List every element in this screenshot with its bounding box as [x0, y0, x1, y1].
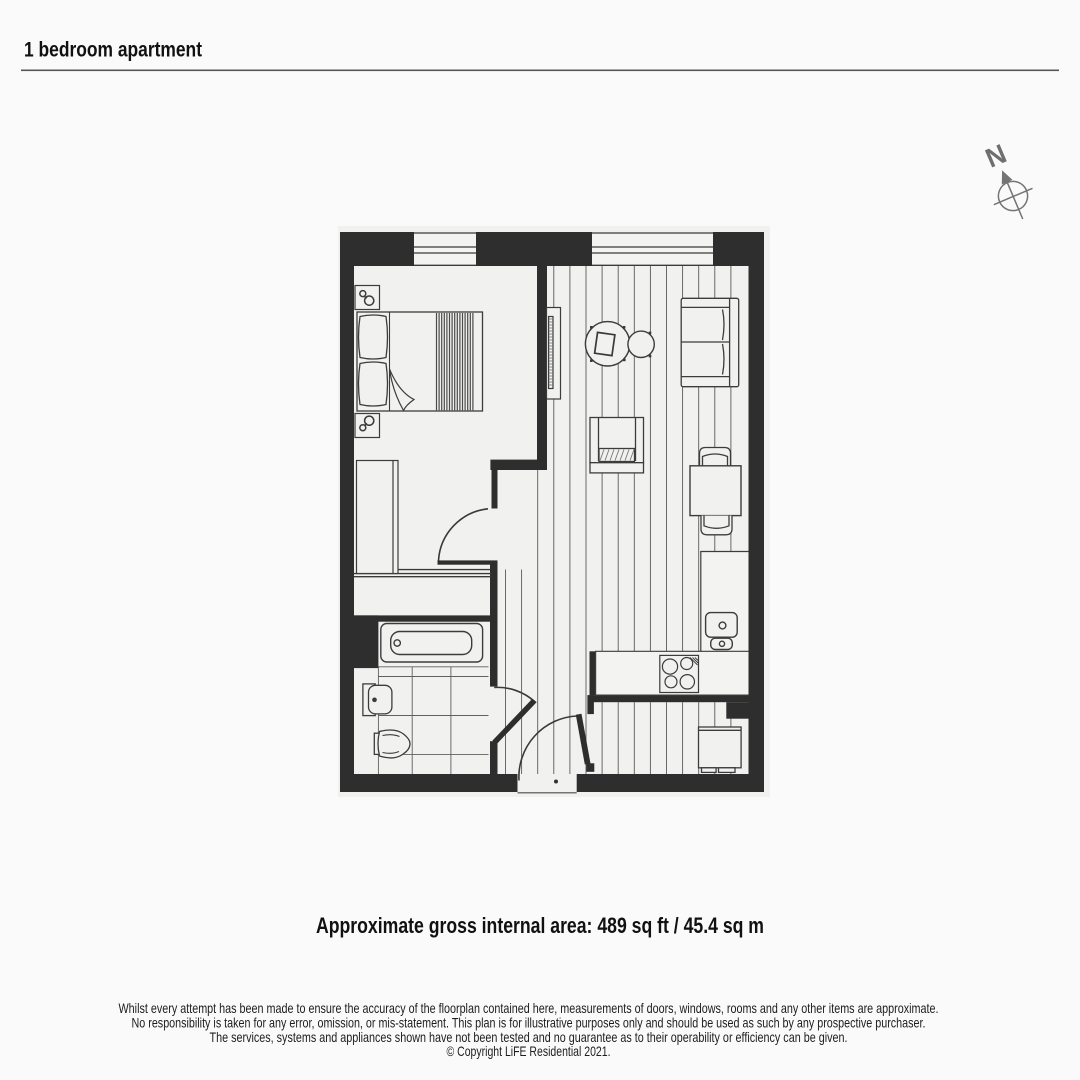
svg-text:No responsibility is taken for: No responsibility is taken for any error…: [132, 1016, 926, 1031]
svg-text:The services, systems and appl: The services, systems and appliances sho…: [210, 1030, 848, 1045]
svg-text:Approximate gross internal are: Approximate gross internal area: 489 sq …: [316, 913, 764, 938]
svg-text:© Copyright LiFE Residential 2: © Copyright LiFE Residential 2021.: [447, 1044, 611, 1059]
svg-text:Whilst every attempt has been: Whilst every attempt has been made to en…: [119, 1001, 939, 1016]
svg-text:1 bedroom apartment: 1 bedroom apartment: [24, 38, 202, 62]
